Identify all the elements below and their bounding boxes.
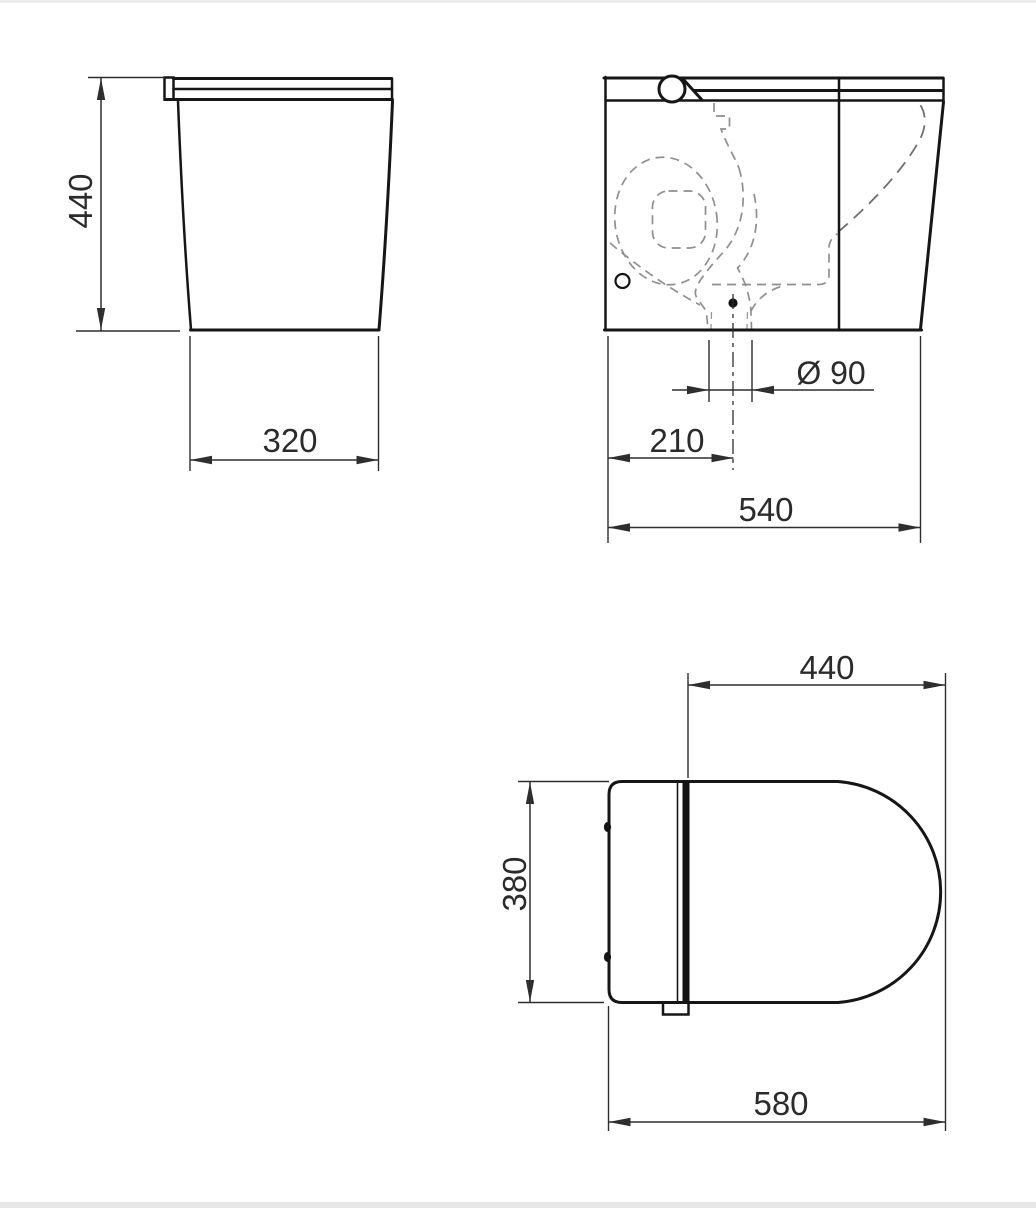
hidden-supply-diagonal — [838, 105, 925, 233]
dimension-label-seat-length: 440 — [799, 649, 854, 686]
hidden-outlet-wall — [711, 312, 712, 329]
arrowhead-right — [357, 456, 379, 464]
arrowhead-right — [924, 681, 946, 689]
hinge-circle — [659, 76, 685, 102]
hidden-outlet-connector — [751, 286, 784, 312]
dimension-label-front-width: 540 — [738, 491, 793, 528]
hinge-nub-top — [604, 822, 611, 832]
hinge-bar — [683, 782, 690, 1003]
hidden-channel-right-wall — [738, 194, 757, 329]
dimension-label-side-height: 440 — [62, 173, 99, 228]
arrowhead-up — [526, 782, 534, 804]
plan-view: 440 380 580 — [496, 649, 946, 1131]
body-front-edge — [379, 102, 393, 330]
arrowhead-down — [97, 308, 105, 330]
dimension-label-side-base: 320 — [262, 422, 317, 459]
arrowhead-left — [688, 681, 710, 689]
back-notch — [663, 1004, 689, 1015]
fixing-hole — [616, 274, 630, 288]
hidden-trap-inner-loop — [653, 191, 706, 248]
hinge-nub-bottom — [604, 952, 611, 962]
arrowhead-up — [97, 78, 105, 100]
arrowhead-left — [752, 386, 774, 394]
technical-drawing-page: 440 320 — [0, 0, 1036, 1208]
toilet-dimension-drawing: 440 320 — [0, 0, 1036, 1208]
lid-back-bump — [165, 78, 174, 100]
plan-outline — [609, 782, 941, 1003]
body-right-edge — [921, 102, 944, 329]
bottom-edge-strip — [0, 1202, 1036, 1208]
arrowhead-right — [687, 386, 709, 394]
hidden-inlet-channel — [714, 103, 739, 168]
side-view: 440 320 — [62, 78, 393, 472]
arrowhead-left — [609, 1118, 631, 1126]
body-back-edge — [178, 102, 191, 330]
dimension-label-back-width: 380 — [496, 856, 533, 911]
arrowhead-right — [712, 454, 734, 462]
arrowhead-left — [608, 454, 630, 462]
arrowhead-right — [899, 523, 921, 531]
front-view: Ø 90 210 540 — [604, 76, 944, 543]
dimension-label-outlet-offset: 210 — [649, 422, 704, 459]
arrowhead-left — [608, 523, 630, 531]
dimension-label-total-depth: 580 — [753, 1085, 808, 1122]
arrowhead-right — [924, 1118, 946, 1126]
top-edge-strip — [0, 0, 1036, 3]
dimension-label-outlet-diameter: Ø 90 — [796, 355, 865, 391]
hidden-outlet-wall — [747, 312, 748, 329]
arrowhead-down — [526, 980, 534, 1002]
arrowhead-left — [190, 456, 212, 464]
